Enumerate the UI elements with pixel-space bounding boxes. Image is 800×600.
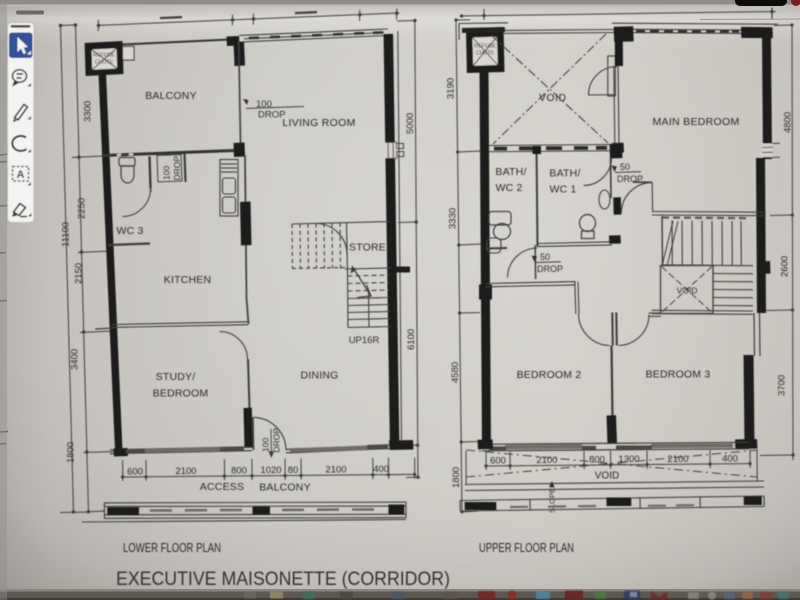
svg-text:2100: 2100 [325, 465, 346, 476]
svg-text:800: 800 [231, 466, 247, 477]
svg-text:2600: 2600 [780, 256, 791, 277]
svg-text:4800: 4800 [783, 112, 794, 133]
svg-text:3400: 3400 [70, 349, 81, 370]
svg-text:A: A [17, 169, 25, 181]
svg-text:STORE: STORE [349, 242, 386, 254]
svg-text:2100: 2100 [536, 455, 557, 466]
svg-text:BEDROOM 2: BEDROOM 2 [517, 369, 582, 381]
svg-text:400: 400 [722, 453, 738, 464]
svg-text:2250: 2250 [77, 198, 88, 219]
svg-text:CHUTE: CHUTE [95, 60, 114, 66]
svg-text:VOID: VOID [595, 471, 619, 482]
svg-text:VOID: VOID [677, 286, 698, 296]
svg-text:DROP: DROP [258, 110, 285, 121]
svg-text:2100: 2100 [667, 454, 688, 465]
svg-text:BALCONY: BALCONY [145, 90, 197, 102]
svg-text:REFUSE: REFUSE [93, 53, 115, 59]
svg-text:6100: 6100 [406, 329, 417, 350]
svg-text:DINING: DINING [301, 370, 339, 382]
svg-text:DROP: DROP [172, 156, 182, 181]
svg-text:1800: 1800 [66, 442, 77, 463]
svg-text:600: 600 [127, 467, 143, 478]
svg-text:CHUTE: CHUTE [476, 51, 495, 57]
svg-text:50: 50 [620, 162, 630, 172]
svg-text:4580: 4580 [450, 362, 461, 383]
svg-text:1800: 1800 [451, 467, 462, 488]
svg-text:MAIN BEDROOM: MAIN BEDROOM [652, 116, 739, 128]
svg-text:400: 400 [373, 464, 389, 475]
svg-text:WC 1: WC 1 [549, 184, 576, 196]
svg-text:BATH/: BATH/ [495, 166, 526, 178]
svg-text:BALCONY: BALCONY [259, 482, 311, 494]
svg-text:100: 100 [261, 438, 271, 452]
svg-text:REFUSE: REFUSE [474, 44, 496, 50]
svg-text:UPPER FLOOR PLAN: UPPER FLOOR PLAN [479, 541, 574, 555]
svg-text:3330: 3330 [448, 208, 459, 229]
svg-text:WC 3: WC 3 [116, 225, 143, 237]
svg-text:DROP: DROP [272, 428, 282, 453]
svg-text:VOID: VOID [539, 93, 567, 104]
svg-text:ACCESS: ACCESS [200, 481, 244, 493]
svg-text:1300: 1300 [618, 454, 639, 465]
svg-text:50: 50 [540, 252, 550, 262]
svg-text:WC 2: WC 2 [495, 182, 522, 194]
svg-text:11100: 11100 [61, 222, 72, 247]
svg-text:LOWER FLOOR PLAN: LOWER FLOOR PLAN [123, 541, 221, 555]
svg-text:EXECUTIVE MAISONETTE (CORRID: EXECUTIVE MAISONETTE (CORRIDOR) [116, 569, 450, 590]
svg-text:2100: 2100 [175, 466, 196, 477]
svg-text:3300: 3300 [83, 101, 94, 122]
svg-text:DROP: DROP [537, 264, 563, 274]
svg-text:STUDY/: STUDY/ [156, 371, 196, 383]
svg-text:BATH/: BATH/ [549, 168, 580, 180]
svg-text:3700: 3700 [777, 375, 788, 396]
svg-text:3190: 3190 [446, 78, 457, 99]
svg-text:600: 600 [490, 456, 506, 467]
svg-text:KITCHEN: KITCHEN [164, 274, 212, 286]
svg-text:BEDROOM 3: BEDROOM 3 [646, 369, 711, 381]
svg-text:100: 100 [162, 166, 172, 180]
svg-text:2150: 2150 [74, 263, 85, 284]
svg-text:BEDROOM: BEDROOM [153, 388, 209, 400]
svg-text:5000: 5000 [405, 113, 416, 134]
svg-text:UP16R: UP16R [349, 335, 380, 346]
svg-text:80: 80 [288, 465, 299, 476]
svg-text:1020: 1020 [260, 465, 281, 476]
svg-text:LIVING ROOM: LIVING ROOM [282, 117, 355, 129]
